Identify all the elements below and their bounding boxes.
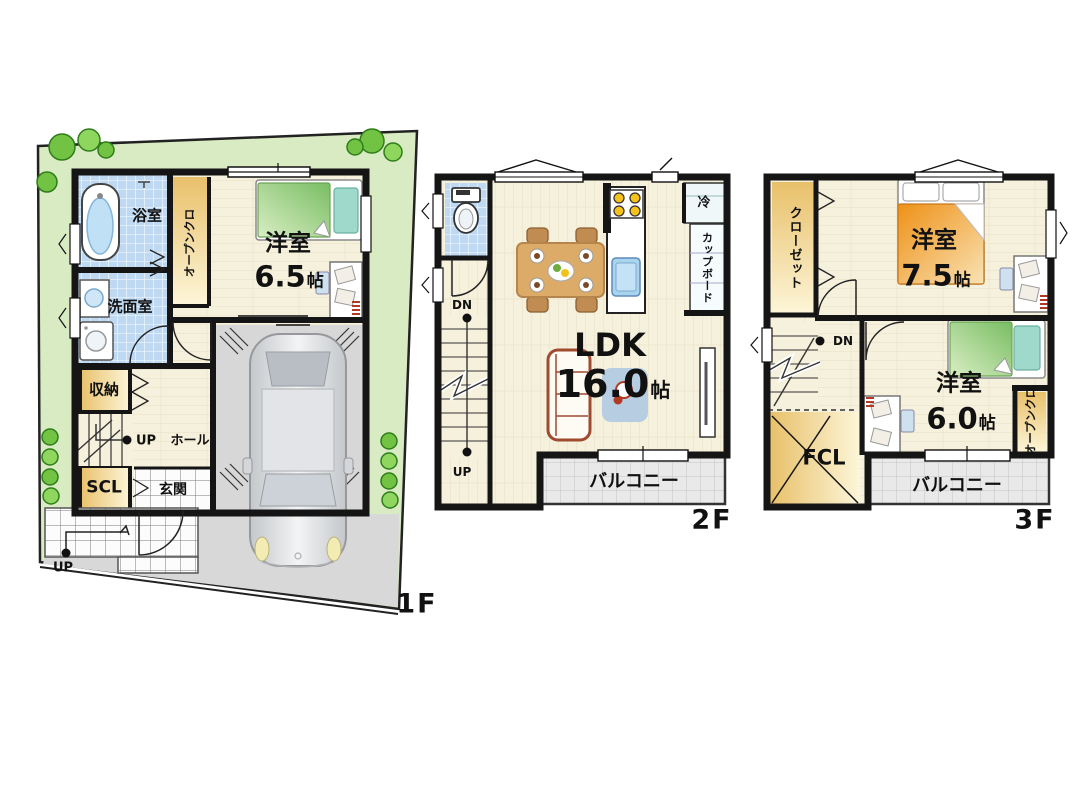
cupboard-label: カップボード <box>702 232 713 304</box>
bedroom-a-name: 洋室 <box>911 230 957 253</box>
ldk-size: 16.0 帖 <box>556 365 671 403</box>
floor1-plan <box>37 129 417 614</box>
bedroom-b-size: 6.0 帖 <box>926 405 995 434</box>
washroom <box>78 272 168 364</box>
floorplan-canvas: 浴室 洗面室 収納 SCL 玄関 UP ホール 洋室 6.5 帖 オープンクロ … <box>0 0 1080 810</box>
open-closet-1f-label: オープンクロ <box>184 209 196 277</box>
bedroom-1f-size: 6.5 帖 <box>254 263 323 292</box>
bedroom-b-size-unit: 帖 <box>979 416 996 433</box>
bed-3f-b <box>948 320 1045 378</box>
kitchen <box>603 183 645 313</box>
bedroom-a-size-unit: 帖 <box>954 273 971 290</box>
tv-board <box>700 348 715 437</box>
approach-up-label: UP <box>53 562 73 575</box>
bath-label: 浴室 <box>132 209 162 224</box>
closet-3f-label: クローゼット <box>788 206 801 290</box>
open-closet-3f-label: オープンクロ <box>1025 387 1037 455</box>
entrance-label: 玄関 <box>159 483 187 497</box>
bedroom-a-size: 7.5 帖 <box>901 262 970 291</box>
washroom-label: 洗面室 <box>107 300 152 315</box>
hall-label: ホール <box>170 435 209 448</box>
car <box>243 334 353 567</box>
bedroom-1f-name: 洋室 <box>265 233 311 256</box>
balcony-3f-label: バルコニー <box>912 477 1002 495</box>
bedroom-1f-size-num: 6.5 <box>254 263 305 292</box>
toilet-room <box>445 183 489 258</box>
bedroom-b-size-num: 6.0 <box>926 405 977 434</box>
ldk-name: LDK <box>574 329 646 361</box>
fridge-label: 冷 <box>697 197 710 210</box>
stairs-dn-label-2f: DN <box>452 299 472 311</box>
stairs-up-label-1f: UP <box>136 435 156 448</box>
stairs-dn-label-3f: DN <box>833 335 853 347</box>
stairs-up-label-2f: UP <box>453 466 472 478</box>
bedroom-b-name: 洋室 <box>936 373 982 396</box>
stairs-1f <box>76 414 133 466</box>
bedroom-a-size-num: 7.5 <box>901 262 952 291</box>
fcl-label: FCL <box>802 448 845 469</box>
ldk-size-num: 16.0 <box>556 365 650 403</box>
floorplan-drawing <box>0 0 1080 810</box>
floor1-tag: 1F <box>396 591 437 618</box>
floor3-tag: 3F <box>1014 507 1055 534</box>
balcony-2f-label: バルコニー <box>589 473 679 491</box>
storage-label: 収納 <box>89 383 119 398</box>
shoe-closet-label: SCL <box>86 480 122 497</box>
stairs-2f <box>438 314 490 459</box>
floor2-tag: 2F <box>691 507 732 534</box>
ldk-size-unit: 帖 <box>650 380 670 400</box>
bedroom-1f-size-unit: 帖 <box>307 274 324 291</box>
